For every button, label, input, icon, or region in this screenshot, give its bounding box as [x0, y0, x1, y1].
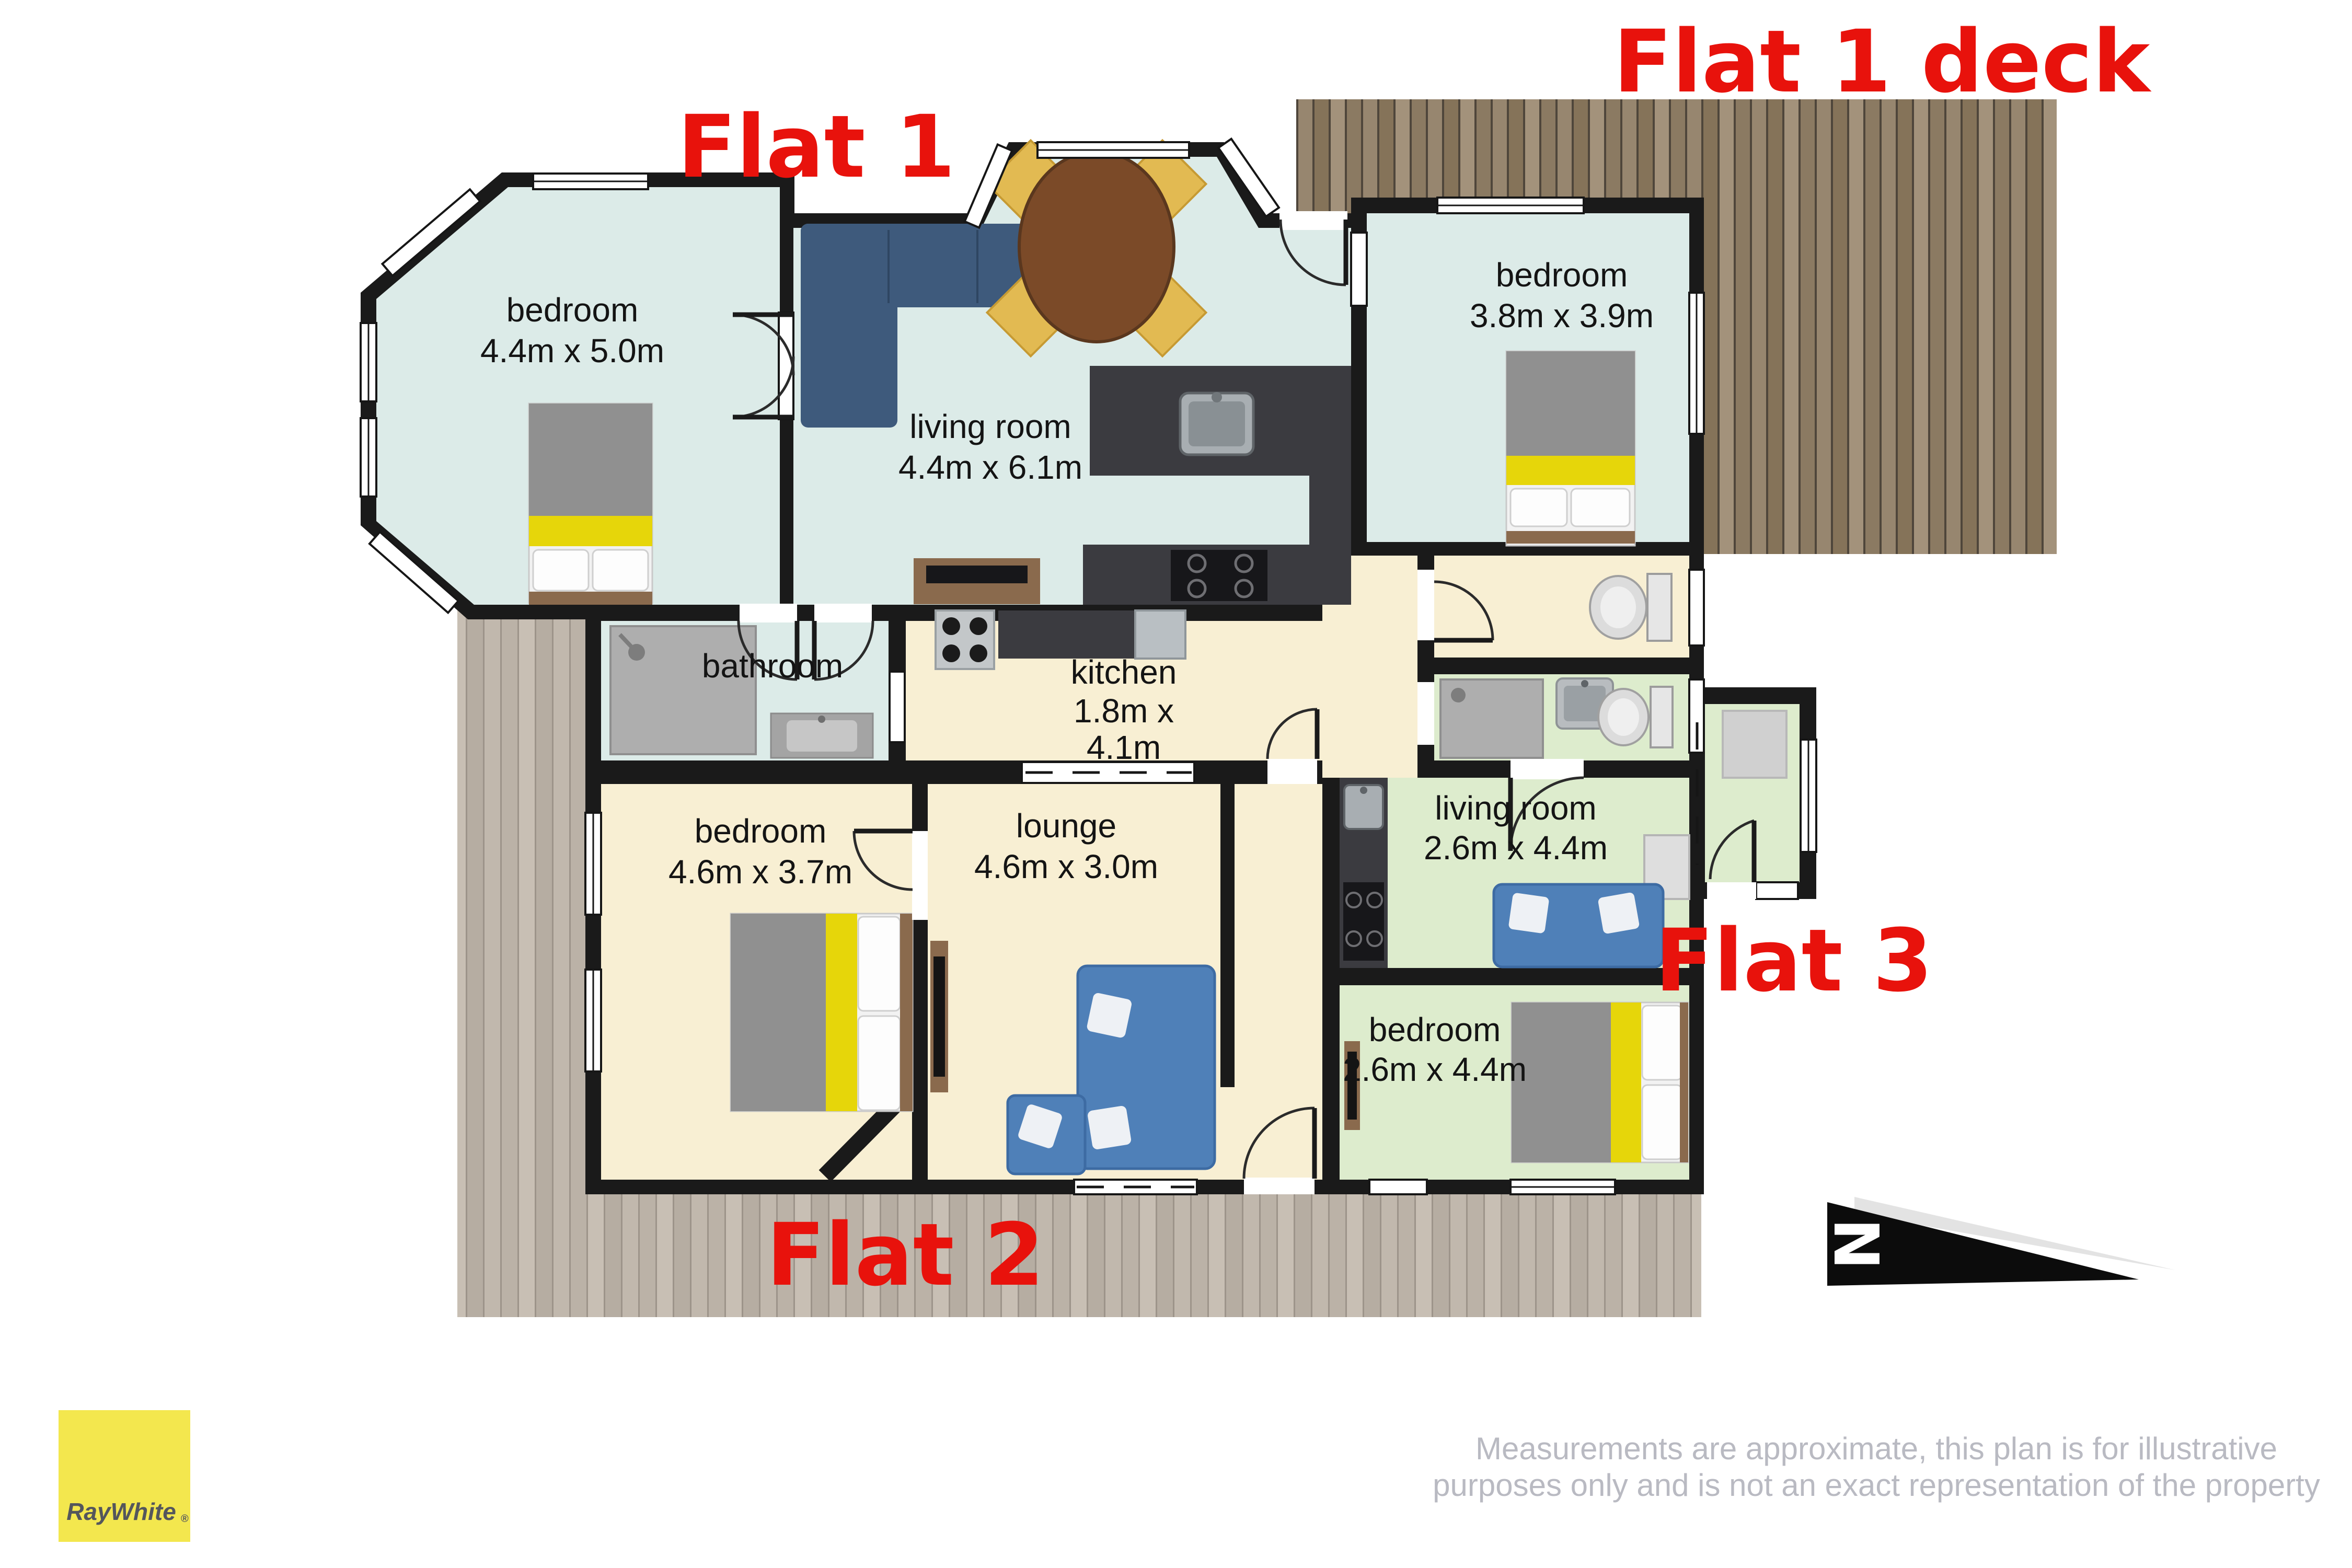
north-arrow: N [1820, 1197, 2175, 1286]
armchair-flat2-lounge [1008, 1096, 1085, 1174]
tv-flat2-lounge [930, 941, 948, 1092]
label-f1-bedroom2-dims: 3.8m x 3.9m [1470, 297, 1654, 335]
disclaimer-line1: Measurements are approximate, this plan … [1475, 1431, 2277, 1466]
dining-table-flat1 [987, 141, 1206, 356]
disclaimer-line2: purposes only and is not an exact repres… [1433, 1468, 2320, 1503]
bed-flat2-bedroom [731, 914, 913, 1111]
label-f2-lounge-name: lounge [1016, 807, 1116, 845]
label-f2-kitchen-name: kitchen [1071, 653, 1177, 691]
raywhite-logo: RayWhite ® [59, 1410, 190, 1542]
label-f2-bedroom-dims: 4.6m x 3.7m [668, 853, 852, 891]
label-f3-living-dims: 2.6m x 4.4m [1424, 829, 1608, 867]
shower-flat3-bathroom [1440, 679, 1543, 758]
cooktop-flat2-kitchen [936, 610, 994, 669]
shower-flat1-bathroom [610, 626, 756, 754]
flat3-label: Flat 3 [1655, 910, 1933, 1011]
toilet-wc [1590, 574, 1671, 641]
label-f1-bathroom-name: bathroom [702, 647, 843, 685]
north-letter: N [1820, 1218, 1892, 1270]
vanity-flat1-bathroom [771, 713, 873, 758]
counter-flat2-kitchen [998, 610, 1185, 659]
toilet-flat3-bathroom [1598, 687, 1673, 747]
bed-flat3-bedroom [1512, 1002, 1688, 1162]
label-f1-bedroom1-dims: 4.4m x 5.0m [480, 332, 664, 370]
label-f3-living-name: living room [1435, 789, 1596, 827]
label-f2-kitchen-dims1: 1.8m x [1074, 692, 1174, 730]
floorplan-page: bedroom 4.4m x 5.0m living room 4.4m x 6… [0, 0, 2352, 1568]
sofa-flat2-lounge [1078, 966, 1215, 1169]
flat1-deck-label: Flat 1 deck [1613, 11, 2152, 112]
doormat-flat3-porch [1723, 711, 1786, 778]
label-f2-bedroom-name: bedroom [695, 812, 827, 850]
sofa-flat3-living [1494, 884, 1663, 967]
label-f1-living-name: living room [909, 408, 1071, 445]
label-f1-living-dims: 4.4m x 6.1m [898, 448, 1082, 486]
label-f3-bedroom-name: bedroom [1369, 1011, 1501, 1048]
flat1-label: Flat 1 [677, 97, 955, 197]
kitchenette-flat3 [1340, 778, 1388, 968]
label-f1-bedroom2-name: bedroom [1496, 256, 1628, 294]
bed-flat1-bedroom1 [529, 403, 652, 605]
bed-flat1-bedroom2 [1506, 351, 1635, 546]
label-f2-kitchen-dims2: 4.1m [1087, 729, 1161, 766]
raywhite-registered-mark: ® [181, 1513, 189, 1525]
label-f2-lounge-dims: 4.6m x 3.0m [974, 848, 1158, 885]
tv-desk-flat1 [914, 558, 1040, 604]
label-f3-bedroom-dims: 2.6m x 4.4m [1343, 1051, 1527, 1088]
flat2-label: Flat 2 [766, 1205, 1044, 1305]
label-f1-bedroom1-name: bedroom [506, 291, 639, 329]
raywhite-logo-text: RayWhite [66, 1498, 176, 1525]
